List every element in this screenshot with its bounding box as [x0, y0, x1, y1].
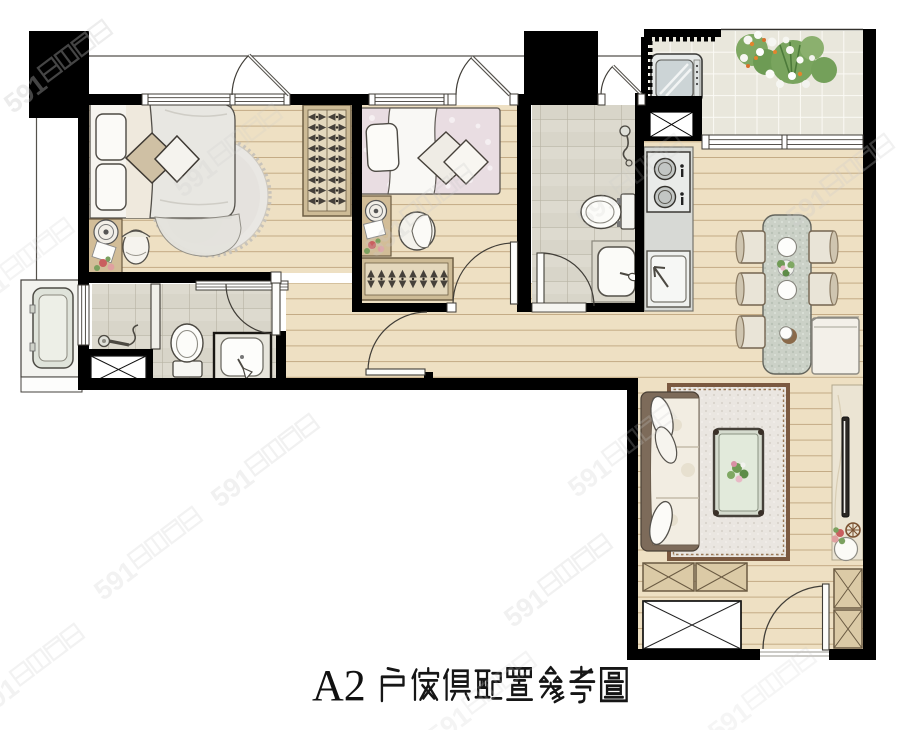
svg-text:A2: A2 — [312, 661, 366, 710]
